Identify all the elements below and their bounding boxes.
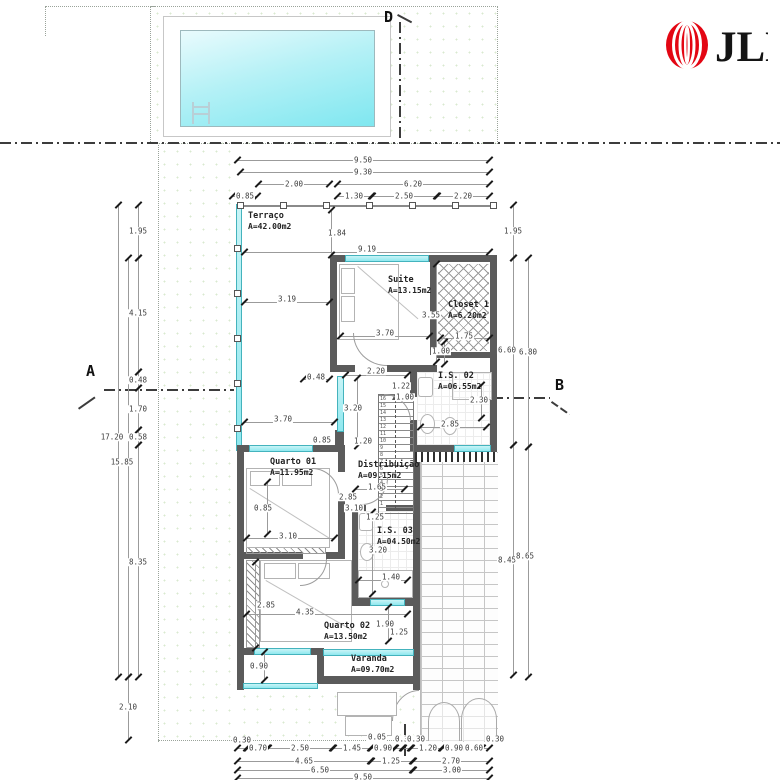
sink [418, 377, 433, 397]
dim-label: 9.50 [353, 156, 373, 164]
room-area-label: A=06.55m2 [438, 383, 481, 391]
dim-label: 0.85 [312, 436, 332, 444]
dim-label: 0.90 [373, 744, 393, 752]
stair-tread-number: 6 [380, 467, 383, 472]
railing-post [234, 335, 241, 342]
window [455, 446, 490, 451]
dim-label: 2.30 [469, 396, 489, 404]
railing-post [234, 380, 241, 387]
brick-patio [420, 452, 498, 742]
section-marker-d: D [384, 8, 393, 26]
dim-label: 0.30 [485, 735, 505, 743]
dim-tick [525, 673, 533, 681]
railing-comb [415, 452, 497, 462]
room-label: Quarto 01 [270, 458, 316, 467]
dim-label: 2.00 [284, 180, 304, 188]
wall [338, 452, 345, 472]
dim-tick [510, 201, 518, 209]
dim-tick [234, 744, 242, 752]
dim-label: 3.20 [343, 404, 363, 412]
dim-label: 3.70 [375, 329, 395, 337]
dim-label: 2.50 [290, 744, 310, 752]
section-marker-b: B [555, 376, 564, 394]
dim-label: 1.75 [454, 332, 474, 340]
dim-label: 2.85 [256, 601, 276, 609]
dim-tick [486, 774, 494, 780]
dim-label: 2.70 [441, 757, 461, 765]
dim-label: 1.30 [344, 192, 364, 200]
shrub [428, 702, 460, 741]
section-line-a [104, 389, 234, 391]
dim-tick [115, 201, 123, 209]
room-area-label: A=42.00m2 [248, 223, 291, 231]
room-label: Terraço [248, 212, 284, 221]
dim-tick [369, 192, 377, 200]
dim-label: 4.35 [295, 608, 315, 616]
dim-label: 3.10 [278, 532, 298, 540]
dim-label: 0.85 [253, 504, 273, 512]
dim-label: 1.95 [503, 227, 523, 235]
stair-tread-number: 3 [380, 488, 383, 493]
dimension-line [246, 614, 408, 615]
dim-label: 2.20 [366, 367, 386, 375]
dim-label: 1.84 [327, 229, 347, 237]
section-marker-a: A [86, 362, 95, 380]
dim-tick [330, 744, 338, 752]
planter [337, 692, 397, 716]
dim-tick [486, 766, 494, 774]
dim-tick [334, 180, 342, 188]
neighbor-boundary-top [45, 6, 155, 7]
dim-label: 6.50 [310, 766, 330, 774]
section-line-a-bend [78, 397, 96, 410]
room-label: Quarto 02 [324, 622, 370, 631]
stair-tread-number: 10 [380, 439, 386, 444]
room-label: Distribuição [358, 461, 419, 470]
dim-label: 6.80 [518, 348, 538, 356]
railing-post [237, 202, 244, 209]
stair-tread-number: 2 [380, 495, 383, 500]
dim-tick [486, 744, 494, 752]
wall [338, 494, 345, 554]
dim-tick [486, 192, 494, 200]
railing-post [490, 202, 497, 209]
dim-tick [525, 443, 533, 451]
stair-tread-number: 12 [380, 425, 386, 430]
pool-ladder-icon [190, 102, 214, 124]
terrace-glass-left [237, 205, 241, 450]
dim-tick [486, 168, 494, 176]
stair-tread-number: 15 [380, 404, 386, 409]
dim-tick [125, 673, 133, 681]
dimension-line [128, 258, 129, 677]
dim-label: 0.58 [128, 433, 148, 441]
dim-tick [510, 254, 518, 262]
stair-tread-number: 1 [380, 502, 383, 507]
dim-label: 0.48 [306, 373, 326, 381]
dim-label: 0.30 [406, 735, 426, 743]
dim-label: 1.20 [418, 744, 438, 752]
dim-tick [408, 744, 416, 752]
dim-tick [234, 766, 242, 774]
lot-ground-pattern-left [158, 145, 238, 742]
dim-tick [525, 254, 533, 262]
dim-tick [135, 254, 143, 262]
dim-label: 1.25 [381, 757, 401, 765]
dim-tick [125, 736, 133, 744]
dim-label: 0.60 [464, 744, 484, 752]
dim-label: 1.95 [128, 227, 148, 235]
stair-tread-number: 8 [380, 453, 383, 458]
dim-tick [410, 766, 418, 774]
dim-tick [368, 757, 376, 765]
dim-label: 17.20 [100, 433, 125, 441]
dim-label: 0.05 [367, 733, 387, 741]
dim-label: 2.10 [118, 703, 138, 711]
dim-tick [510, 671, 518, 679]
dim-tick [135, 201, 143, 209]
dim-tick [510, 441, 518, 449]
dim-tick [234, 757, 242, 765]
stair-tread-number: 7 [380, 460, 383, 465]
stair-tread-number: 5 [380, 474, 383, 479]
section-line-b [492, 397, 550, 399]
dim-label: 1.00 [431, 347, 451, 355]
stair-tread-number: 16 [380, 397, 386, 402]
dim-label: 1.25 [389, 628, 409, 636]
lot-boundary-left [158, 145, 159, 742]
dim-tick [486, 757, 494, 765]
stair-tread-number: 11 [380, 432, 386, 437]
room-label: Varanda [351, 655, 387, 664]
jll-logo: JLL [663, 18, 768, 72]
railing-post [366, 202, 373, 209]
dim-label: 6.20 [403, 180, 423, 188]
dim-label: 2.20 [453, 192, 473, 200]
dim-tick [326, 180, 334, 188]
dim-tick [410, 757, 418, 765]
balcony-glass-rail [244, 684, 317, 688]
dim-label: 2.85 [338, 493, 358, 501]
dim-label: 3.10 [344, 504, 364, 512]
dim-tick [434, 192, 442, 200]
dim-tick [486, 156, 494, 164]
dim-tick [334, 192, 342, 200]
dim-label: 3.00 [442, 766, 462, 774]
dim-tick [255, 180, 263, 188]
dim-label: 3.55 [421, 311, 441, 319]
dim-label: 0.90 [444, 744, 464, 752]
dim-label: 1.25 [365, 513, 385, 521]
dim-label: 2.85 [440, 420, 460, 428]
dim-label: 1.40 [381, 573, 401, 581]
dimension-line [528, 447, 529, 677]
dim-label: 1.22 [391, 382, 411, 390]
dim-label: 0.85 [235, 192, 255, 200]
floor-plan-canvas: JLL [0, 0, 780, 780]
dim-label: 4.65 [294, 757, 314, 765]
wall [317, 676, 420, 684]
room-area-label: A=11.95m2 [270, 469, 313, 477]
room-label: I.S. 02 [438, 372, 474, 381]
section-line-d [399, 22, 401, 142]
dim-label: 3.70 [273, 415, 293, 423]
dim-label: 3.19 [277, 295, 297, 303]
room-area-label: A=13.50m2 [324, 633, 367, 641]
dim-label: 3.20 [368, 546, 388, 554]
railing-post [234, 245, 241, 252]
stair-tread-number: 9 [380, 446, 383, 451]
window [250, 446, 312, 451]
dim-tick [135, 441, 143, 449]
pillow [341, 268, 355, 294]
pillow [264, 563, 296, 579]
jll-logo-graphic: JLL [663, 18, 768, 72]
dim-tick [125, 254, 133, 262]
dim-tick [234, 774, 242, 780]
room-area-label: A=13.15m2 [388, 287, 431, 295]
section-line-b-bend [551, 401, 570, 415]
railing-post [323, 202, 330, 209]
railing-post [234, 290, 241, 297]
room-area-label: A=09.70m2 [351, 666, 394, 674]
section-cut-line [0, 142, 780, 144]
railing-post [280, 202, 287, 209]
wall [337, 365, 355, 372]
dim-label: 1.00 [395, 393, 415, 401]
dim-label: 4.15 [128, 309, 148, 317]
dim-label: 1.20 [353, 437, 373, 445]
room-label: Suite [388, 276, 414, 285]
stair-tread-number: 13 [380, 418, 386, 423]
dim-label: 1.65 [367, 483, 387, 491]
pillow [341, 296, 355, 322]
dim-tick [486, 180, 494, 188]
jll-logo-text: JLL [715, 24, 768, 71]
stair-tread-number: 14 [380, 411, 386, 416]
railing-post [452, 202, 459, 209]
dim-tick [115, 673, 123, 681]
dim-label: 9.50 [353, 773, 373, 780]
dim-tick [135, 673, 143, 681]
window [346, 256, 428, 261]
room-area-label: A=6.20m2 [448, 312, 487, 320]
wall [326, 552, 345, 559]
dim-label: 1.45 [342, 744, 362, 752]
neighbor-boundary-side [45, 6, 46, 36]
railing-post [234, 425, 241, 432]
railing-post [409, 202, 416, 209]
room-area-label: A=04.50m2 [377, 538, 420, 546]
dim-label: 0.70 [248, 744, 268, 752]
dim-label: 9.30 [353, 168, 373, 176]
dim-label: 8.35 [128, 558, 148, 566]
dim-label: 0.90 [249, 662, 269, 670]
dim-label: 1.70 [128, 405, 148, 413]
dim-label: 0.48 [128, 376, 148, 384]
dim-label: 6.60 [497, 346, 517, 354]
dim-label: 15.85 [110, 458, 135, 466]
dim-label: 2.50 [394, 192, 414, 200]
wall [330, 255, 337, 372]
dim-label: 8.65 [515, 552, 535, 560]
dim-label: 9.19 [357, 245, 377, 253]
wall [413, 452, 420, 690]
window [371, 600, 404, 605]
room-label: Closet 1 [448, 301, 489, 310]
room-label: I.S. 03 [377, 527, 413, 536]
stair-tread-number: 4 [380, 481, 383, 486]
